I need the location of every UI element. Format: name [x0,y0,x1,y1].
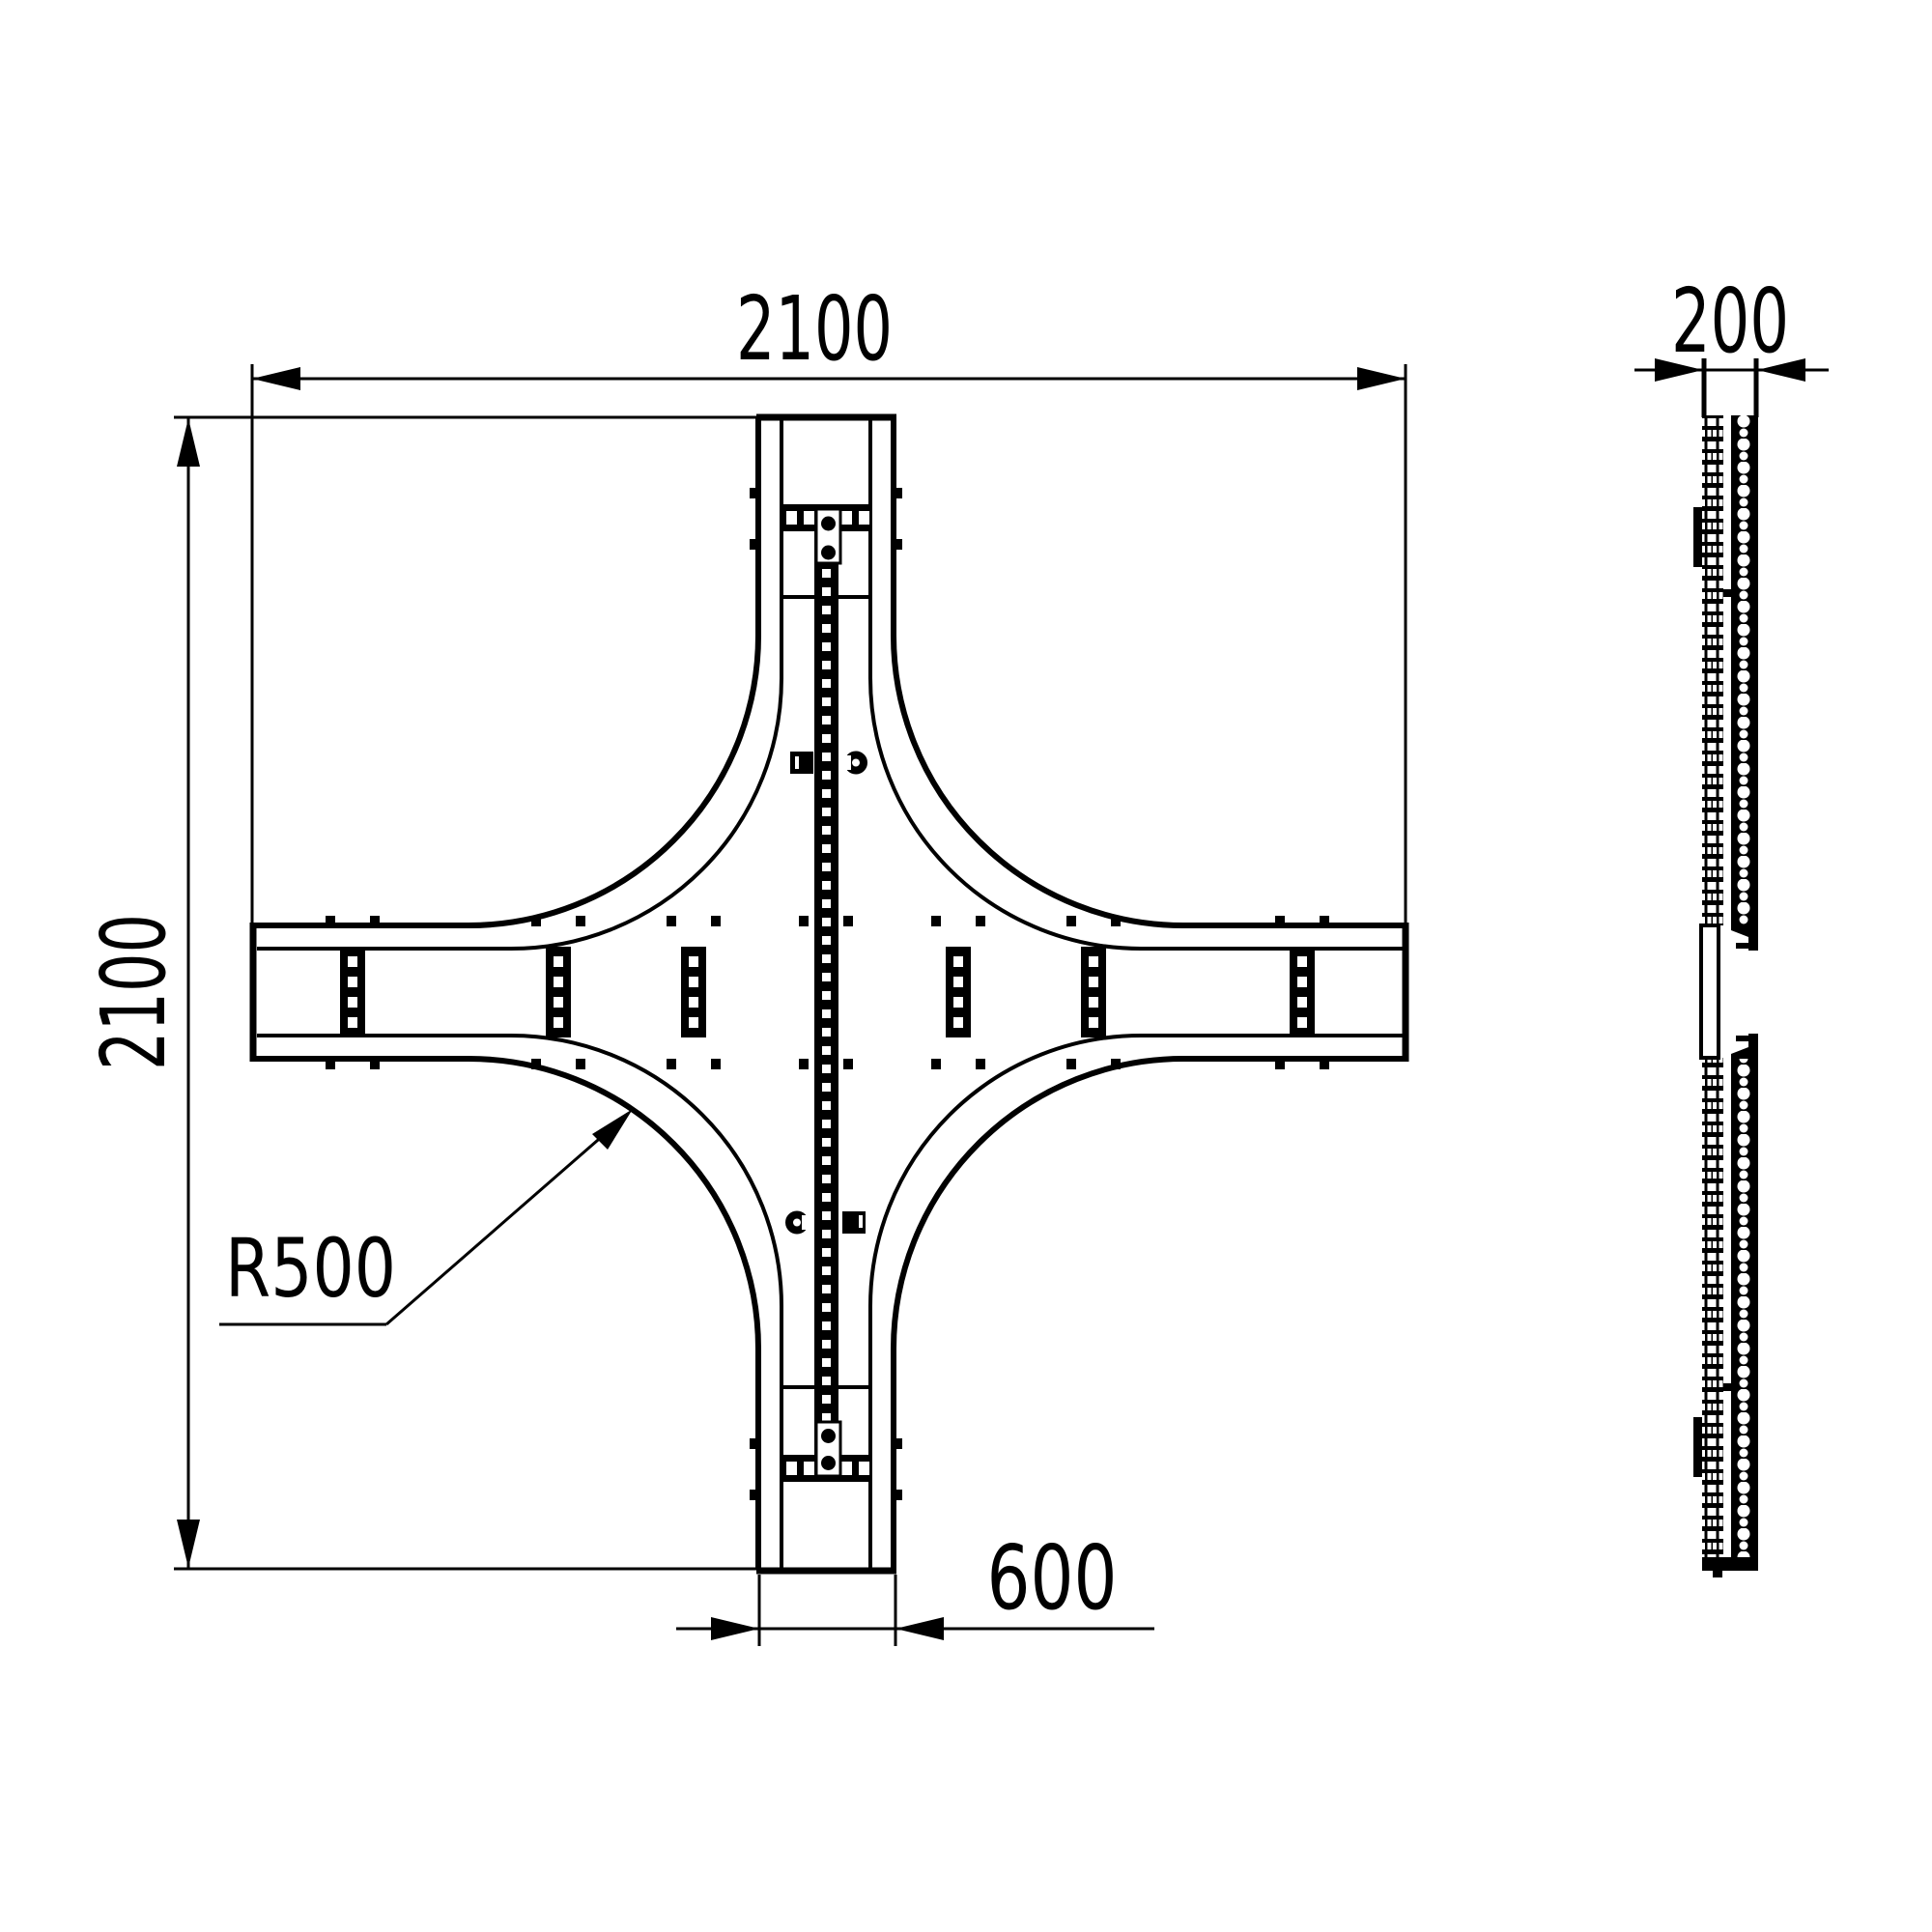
edge-tick [799,916,809,926]
edge-tick [843,916,853,926]
edge-tick [893,539,902,550]
edge-tick [750,539,759,550]
rung-hole [1297,977,1307,987]
rung-hole [1089,997,1098,1008]
edge-tick [711,1059,721,1069]
edge-tick [750,488,759,498]
edge-tick [326,1059,335,1069]
edge-tick [931,916,941,926]
edge-tick [711,916,721,926]
rung-hole [348,997,357,1008]
rung-hole [689,977,698,987]
dim-label-left-height: 2100 [82,914,185,1070]
side-view [1693,358,1758,1577]
edge-tick [1320,1059,1329,1069]
radius-callout: R500 [219,1109,633,1324]
dim-label-top-width: 2100 [736,277,893,381]
rung-hole [1089,1017,1098,1028]
rung-hole [689,956,698,967]
rung-hole [953,1017,963,1028]
arrowhead-right [1357,367,1406,390]
rung-hole [953,977,963,987]
rung-hole [1089,977,1098,987]
edge-tick [531,1059,541,1069]
dim-side-thickness: 200 [1634,270,1829,382]
dim-branch-width: 600 [676,1526,1154,1646]
rung-hole [348,956,357,967]
arrowhead-left [252,367,300,390]
rung-hole [689,997,698,1008]
rung-hole [554,977,563,987]
edge-tick [576,1059,585,1069]
rung-hole [1297,956,1307,967]
rung-hole [1297,1017,1307,1028]
leader-line [386,1114,628,1324]
side-clip-upper [1693,507,1702,567]
edge-tick [843,1059,853,1069]
edge-tick [976,916,985,926]
rung-hole [953,956,963,967]
side-clip-lower [1693,1417,1702,1477]
edge-tick [1066,1059,1076,1069]
edge-tick [326,916,335,926]
dim-label-side-thickness: 200 [1671,270,1789,373]
edge-tick [576,916,585,926]
edge-tick [799,1059,809,1069]
edge-tick [893,1490,902,1500]
splice-plate-top [816,509,840,563]
side-center-line [1723,415,1731,1571]
leader-arrowhead [592,1109,633,1150]
splice-bar [814,504,838,1482]
edge-tick [976,1059,985,1069]
rung-hole [554,997,563,1008]
edge-tick [1275,916,1285,926]
rung-hole [1089,956,1098,967]
arrowhead-down [177,1520,200,1568]
edge-tick [893,1438,902,1449]
dim-label-branch-width: 600 [987,1526,1118,1630]
side-notch [1701,925,1758,1059]
arrowhead-left [895,1617,944,1640]
rung-hole [1297,997,1307,1008]
rung-hole [689,1017,698,1028]
edge-tick [370,916,380,926]
rung-hole [554,1017,563,1028]
edge-tick [667,916,676,926]
edge-tick [1066,916,1076,926]
side-bottom-cap [1702,1557,1758,1571]
edge-tick [1111,1059,1121,1069]
side-right-rail [1731,415,1758,1571]
rung-hole [348,977,357,987]
edge-tick [1275,1059,1285,1069]
edge-tick [667,1059,676,1069]
arrowhead-right [711,1617,759,1640]
side-rail-web-through-notch [1701,925,1719,1058]
drawing-sheet: 2100 2100 600 200 [0,0,1932,1932]
rung-hole [554,956,563,967]
technical-drawing: 2100 2100 600 200 [0,0,1932,1932]
side-bottom-pin [1713,1571,1722,1577]
rung-hole [348,1017,357,1028]
edge-tick [370,1059,380,1069]
edge-tick [1111,916,1121,926]
edge-tick [750,1438,759,1449]
arrowhead-up [177,418,200,467]
plan-view [253,417,1406,1571]
rung-hole [953,997,963,1008]
edge-tick [531,916,541,926]
dim-left-height: 2100 [82,417,756,1569]
edge-tick [931,1059,941,1069]
edge-tick [750,1490,759,1500]
dim-label-fillet-radius: R500 [225,1221,396,1316]
splice-plate-bottom [816,1422,840,1476]
edge-tick [893,488,902,498]
edge-tick [1320,916,1329,926]
